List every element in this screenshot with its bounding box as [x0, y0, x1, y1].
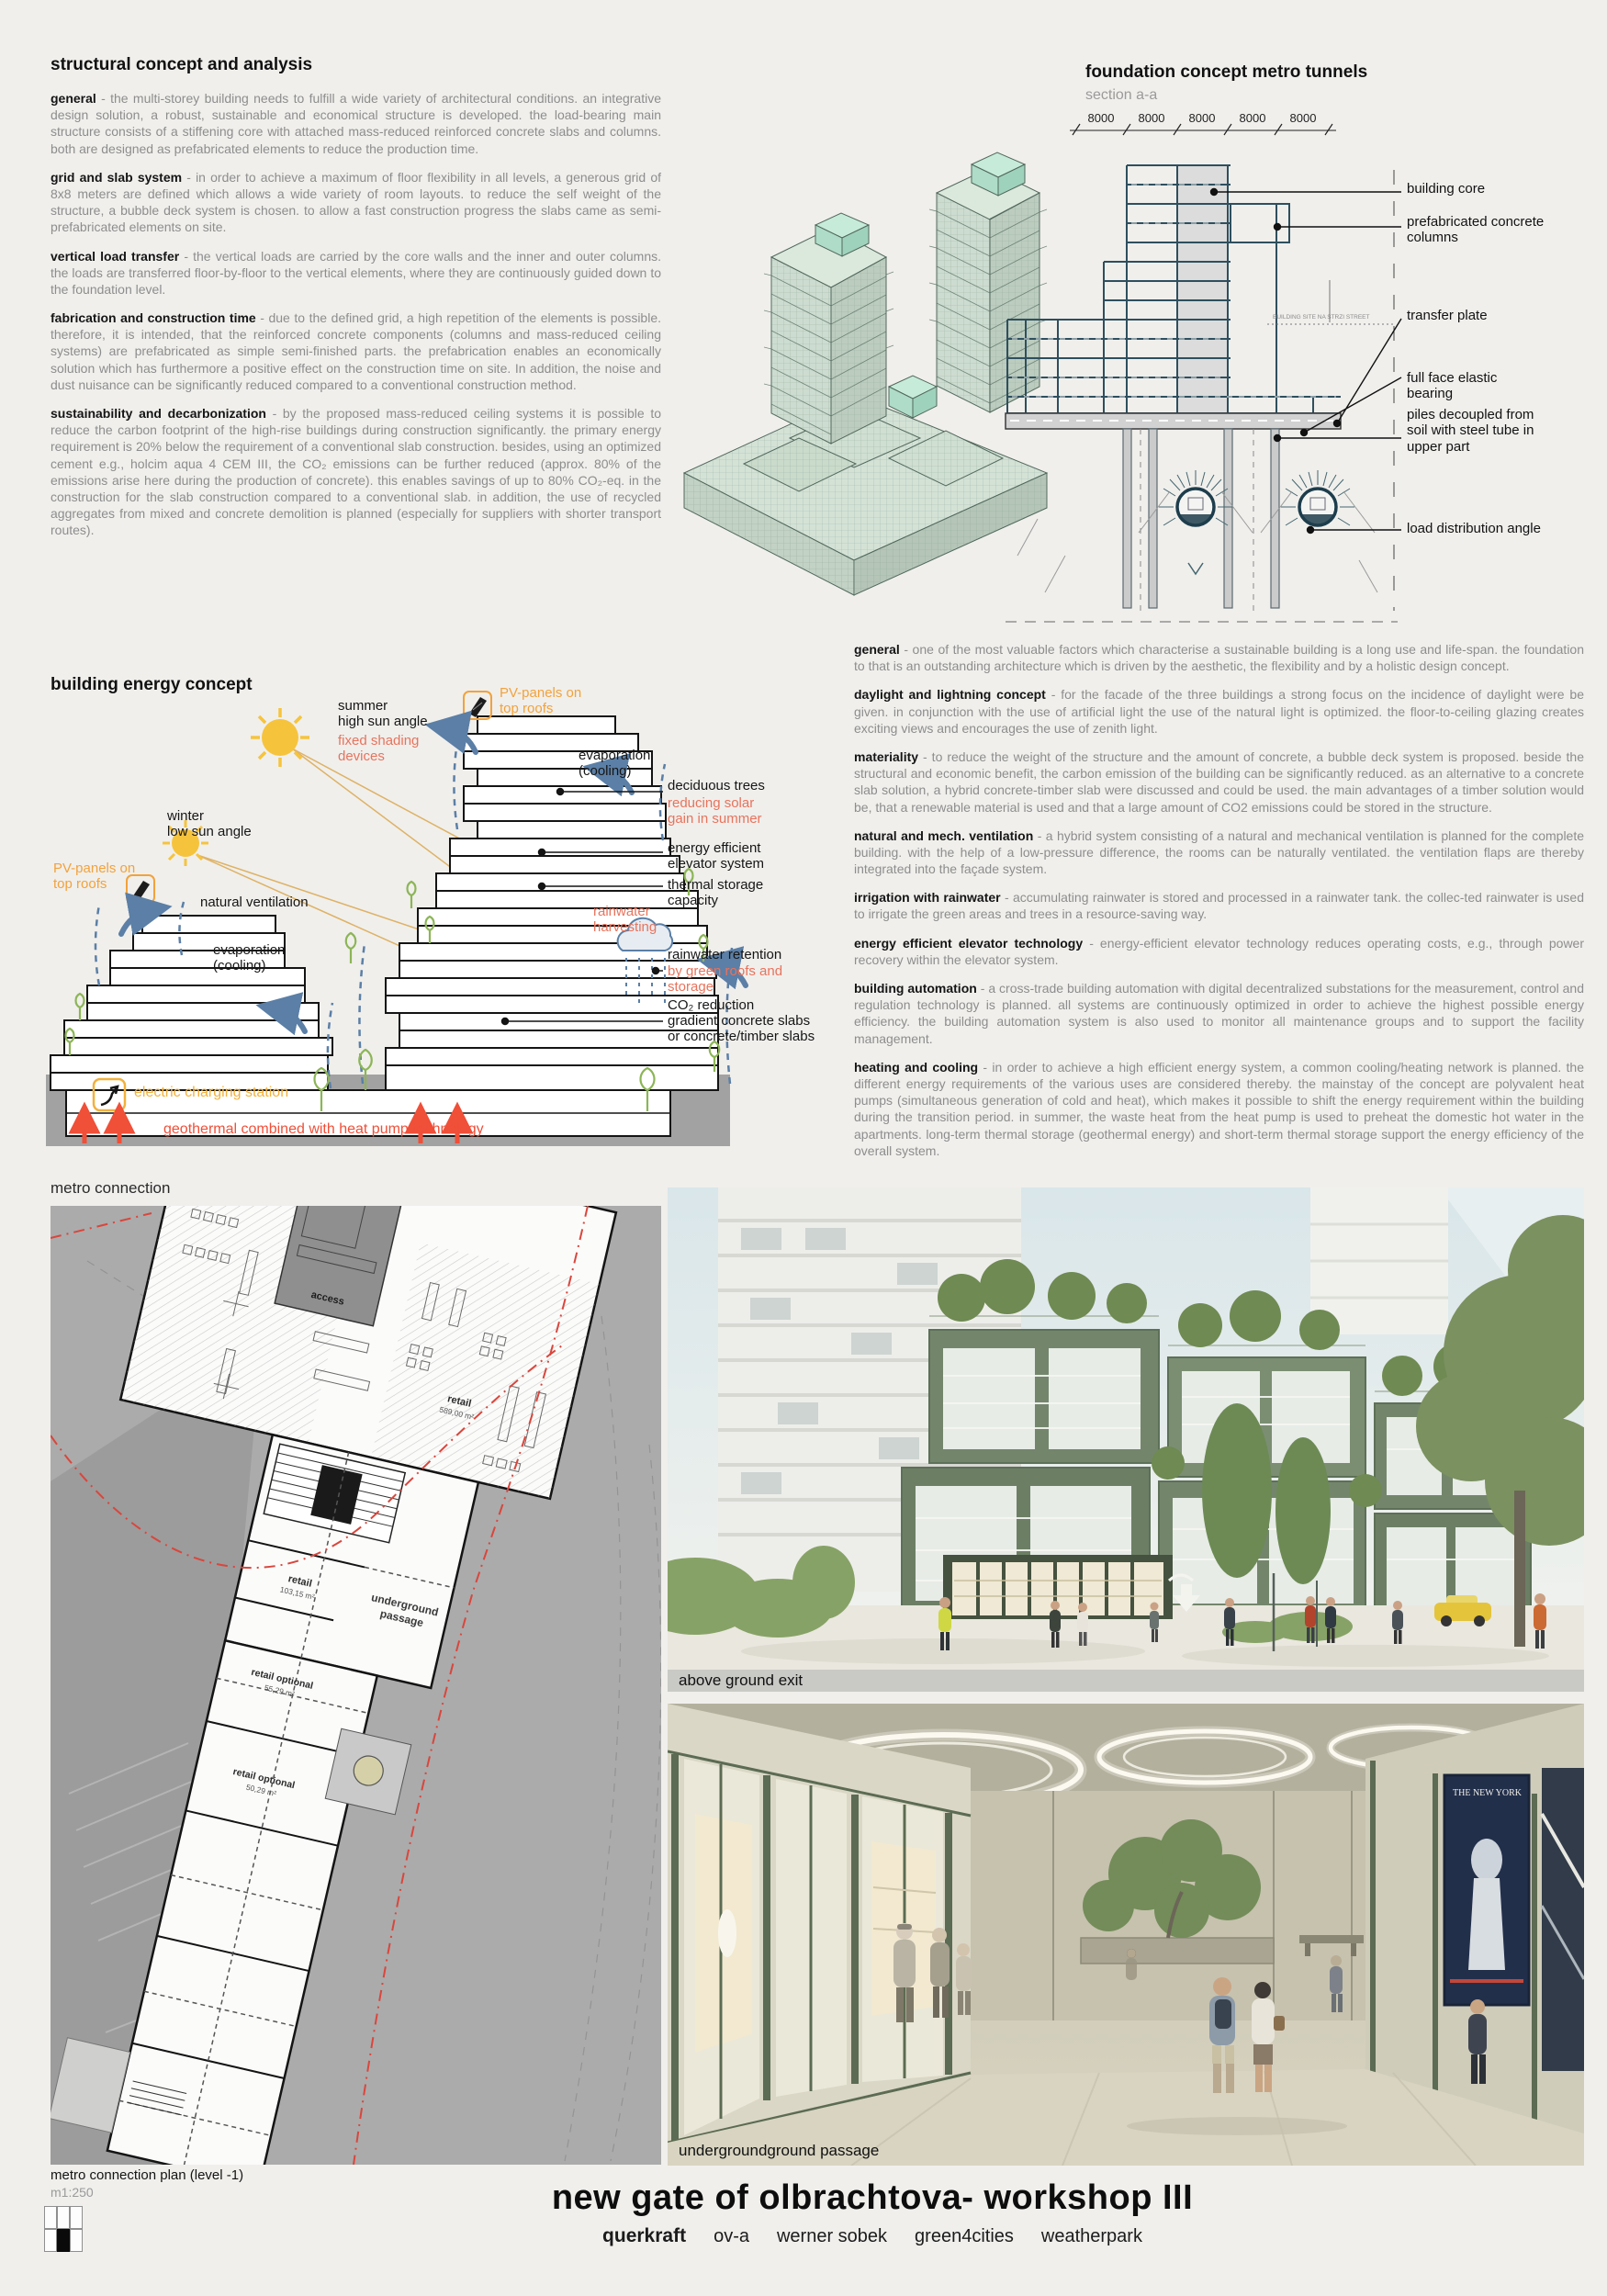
poster: structural concept and analysis general … [0, 0, 1607, 2296]
credit-green4cities: green4cities [915, 2226, 1014, 2247]
paragraph-fabrication: fabrication and construction time - due … [51, 310, 661, 393]
site-note: BUILDING SITE NA STRZI STREET [1273, 314, 1369, 321]
label-pv-right: PV-panels on top roofs [500, 686, 596, 717]
dimension-label: 8000 [1290, 111, 1317, 125]
footer-title-block: new gate of olbrachtova- workshop III qu… [386, 2178, 1359, 2247]
label-electric-charging: electric charging station [134, 1085, 288, 1101]
paragraph-general2: general - one of the most valuable facto… [854, 641, 1584, 674]
foundation-concept-diagram: foundation concept metro tunnels section… [1001, 60, 1602, 640]
credit-werner-sobek: werner sobek [777, 2226, 887, 2247]
paragraph-elevator: energy efficient elevator technology - e… [854, 935, 1584, 968]
label-transfer-plate: transfer plate [1407, 308, 1590, 323]
label-co2-reduction: CO₂ reduction gradient concrete slabs or… [668, 998, 837, 1045]
label-pv-left: PV-panels on top roofs [53, 861, 145, 893]
paragraph-head: general [51, 91, 96, 106]
plan-heading: metro connection [51, 1179, 170, 1198]
paragraph-head: fabrication and construction time [51, 310, 256, 325]
paragraph-general: general - the multi-storey building need… [51, 90, 661, 157]
poster-abstract [1542, 1768, 1584, 2071]
credit-weatherpark: weatherpark [1041, 2226, 1142, 2247]
label-fixed-shading: fixed shading devices [338, 734, 439, 765]
paragraph-grid-slab: grid and slab system - in order to achie… [51, 169, 661, 236]
label-building-core: building core [1407, 181, 1590, 197]
energy-concept-diagram: building energy concept summer high sun … [46, 675, 849, 1189]
label-piles: piles decoupled from soil with steel tub… [1407, 407, 1545, 455]
label-deciduous-accent: reducing solar gain in summer [668, 796, 778, 827]
structural-concept-title: structural concept and analysis [51, 55, 661, 75]
render1-caption-strip: above ground exit [668, 1670, 1584, 1692]
dimension-label: 8000 [1088, 111, 1115, 125]
paragraph-body: - the multi-storey building needs to ful… [51, 91, 661, 156]
energy-concept-title: building energy concept [51, 675, 253, 695]
metro-connection-plan: access retail 589,00 m² [51, 1206, 661, 2165]
credit-ova: ov-a [714, 2226, 749, 2247]
label-geothermal: geothermal combined with heat pump techn… [163, 1121, 485, 1138]
paragraph-automation: building automation - a cross-trade buil… [854, 980, 1584, 1047]
structural-concept-section: structural concept and analysis general … [51, 55, 661, 551]
summer-sun-icon [251, 708, 309, 767]
paragraph-ventilation: natural and mech. ventilation - a hybrid… [854, 827, 1584, 878]
logo-grid-icon [44, 2206, 83, 2252]
label-load-angle: load distribution angle [1407, 521, 1545, 536]
paragraph-heating-cooling: heating and cooling - in order to achiev… [854, 1059, 1584, 1159]
dimension-label: 8000 [1189, 111, 1216, 125]
dimension-label: 8000 [1240, 111, 1266, 125]
render-above-ground-exit: above ground exit [668, 1187, 1584, 1692]
paragraph-head: vertical load transfer [51, 249, 179, 264]
label-evaporation-right: evaporation (cooling) [579, 748, 670, 780]
label-rainwater-retention: rainwater retention [668, 948, 824, 963]
paragraph-head: grid and slab system [51, 170, 182, 185]
foundation-drawing: 8000 8000 8000 8000 8000 [1001, 60, 1602, 640]
label-thermal-storage: thermal storage capacity [668, 878, 787, 909]
label-natural-ventilation: natural ventilation [200, 895, 347, 911]
paragraph-materiality: materiality - to reduce the weight of th… [854, 748, 1584, 816]
paragraph-body: - by the proposed mass-reduced ceiling s… [51, 406, 661, 537]
paragraph-sustainability: sustainability and decarbonization - by … [51, 405, 661, 539]
pv-panel-icon [464, 692, 491, 719]
credits: querkraft ov-a werner sobek green4cities… [386, 2225, 1359, 2247]
paragraph-head: sustainability and decarbonization [51, 406, 266, 421]
label-rainwater-harvesting: rainwater harvesting [593, 905, 680, 936]
label-elevator-system: energy efficient elevator system [668, 841, 796, 872]
label-elastic-bearing: full face elastic bearing [1407, 370, 1526, 402]
render1-caption: above ground exit [679, 1671, 803, 1690]
label-retention-accent: by green roofs and storage [668, 964, 805, 996]
label-deciduous-trees: deciduous trees [668, 779, 815, 794]
label-winter: winter low sun angle [167, 809, 252, 840]
energy-text-section: general - one of the most valuable facto… [854, 641, 1584, 1171]
paragraph-vertical-load: vertical load transfer - the vertical lo… [51, 248, 661, 298]
energy-drawing [46, 675, 849, 1189]
plan-caption: metro connection plan (level -1) m1:250 [51, 2167, 243, 2200]
render2-caption: undergroundground passage [679, 2142, 879, 2160]
label-summer: summer high sun angle [338, 699, 428, 730]
credit-querkraft: querkraft [602, 2225, 686, 2247]
fem-model-illustration [661, 106, 1056, 634]
paragraph-daylight: daylight and lightning concept - for the… [854, 686, 1584, 737]
label-prefab-columns: prefabricated concrete columns [1407, 214, 1545, 246]
svg-text:THE NEW YORK: THE NEW YORK [1453, 1788, 1523, 1798]
render-underground-passage: THE NEW YORK [668, 1704, 1584, 2166]
poster-title: new gate of olbrachtova- workshop III [386, 2178, 1359, 2218]
dimension-label: 8000 [1139, 111, 1165, 125]
paragraph-irrigation: irrigation with rainwater - accumulating… [854, 889, 1584, 922]
label-evaporation-left: evaporation (cooling) [213, 943, 305, 974]
poster-new-york: THE NEW YORK [1444, 1775, 1529, 2005]
